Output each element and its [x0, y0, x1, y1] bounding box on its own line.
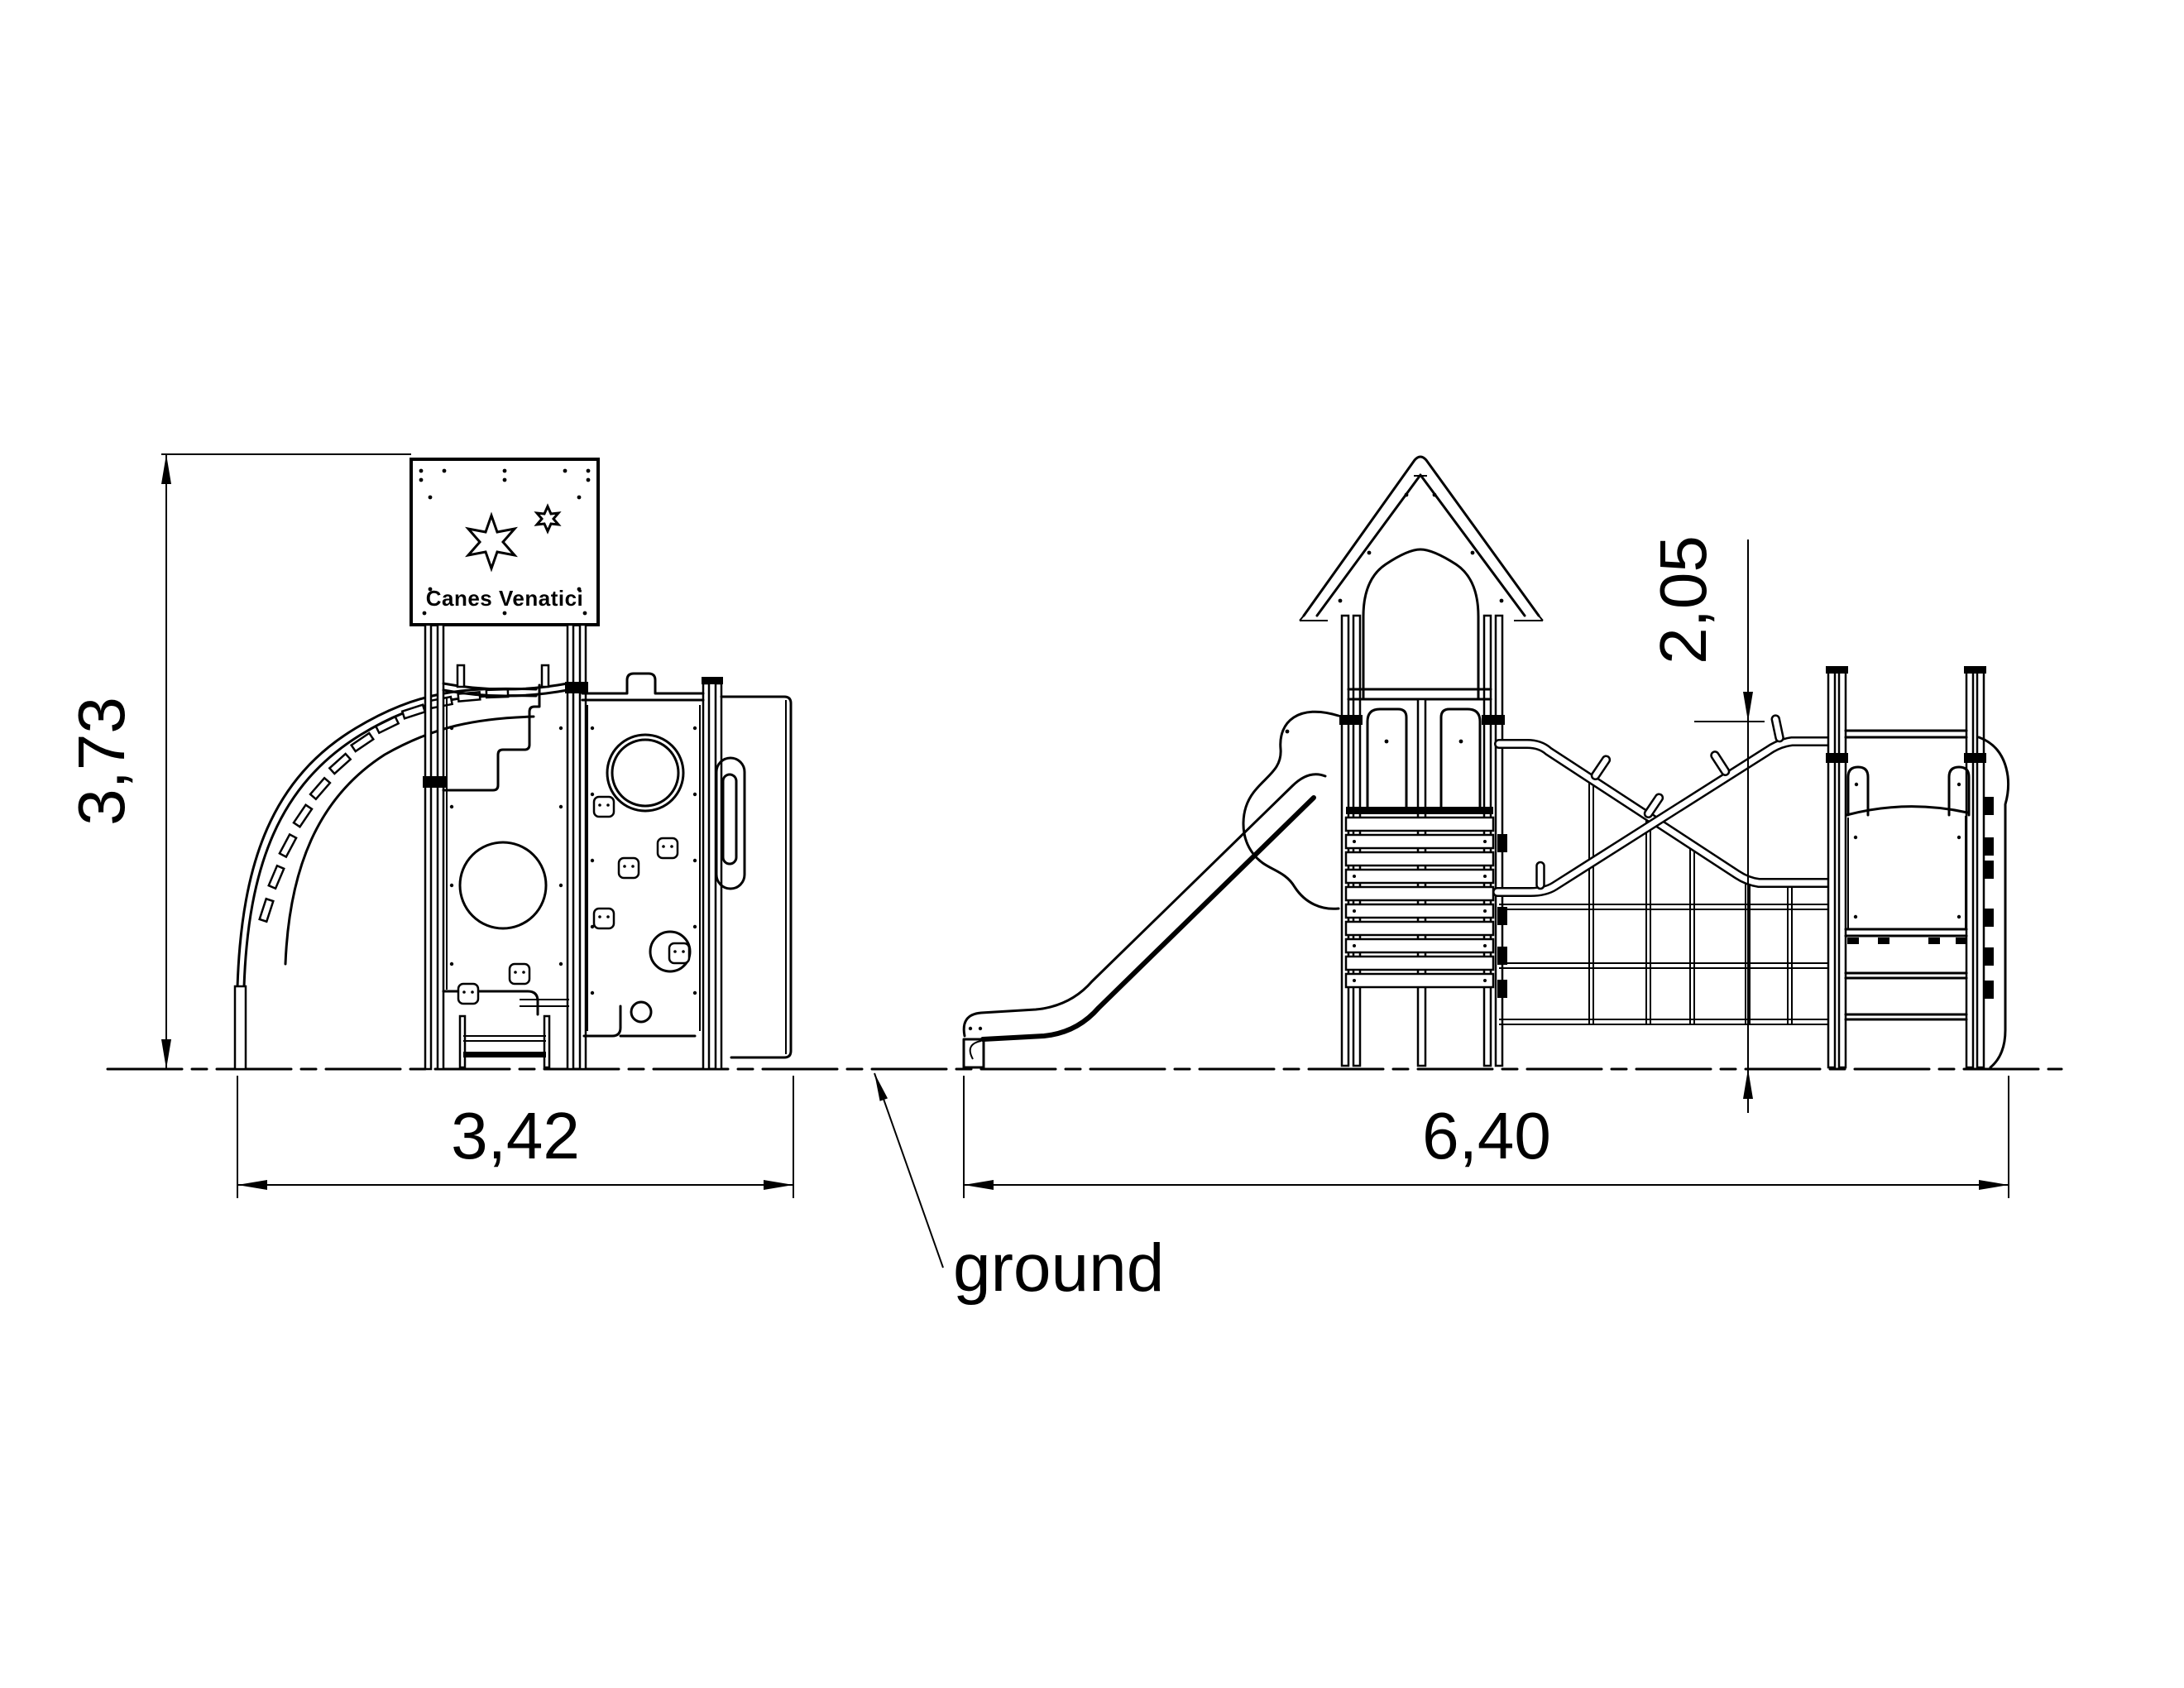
end-unit-posts — [1826, 666, 1986, 1067]
climbing-hold-icon — [594, 797, 614, 817]
rail-clamp — [1497, 947, 1507, 965]
ramp-support-post — [235, 986, 246, 1069]
ground-label: ground — [953, 1230, 1164, 1306]
front-elevation-view: Canes Venatici — [235, 459, 791, 1069]
end-unit-rails — [1846, 929, 1967, 1019]
playground-elevation-drawing: Canes Venatici — [0, 0, 2184, 1688]
crawl-hole — [460, 842, 546, 928]
tower-roof — [1300, 457, 1543, 621]
dimension-label-climb-height: 2,05 — [1646, 535, 1720, 664]
step-tread — [463, 1052, 546, 1057]
handle-stub — [542, 665, 548, 687]
sign-board: Canes Venatici — [411, 459, 598, 625]
climbing-net-section — [1497, 715, 1830, 1024]
curved-climbing-ramp — [235, 688, 536, 1069]
dimension-side-length: 6,40 — [964, 1076, 2009, 1198]
end-climbing-unit — [1826, 666, 2009, 1067]
rail-clamp — [1497, 834, 1507, 852]
end-unit-panel — [1846, 807, 1967, 929]
rail-clamp — [1497, 980, 1507, 998]
tower — [1300, 457, 1543, 1066]
dimension-label-front-width: 3,42 — [451, 1099, 580, 1172]
tube-rungs — [1537, 715, 1784, 889]
climbing-tube-ascending — [1497, 741, 1830, 892]
sign-text: Canes Venatici — [426, 586, 584, 611]
ground-callout: ground — [874, 1073, 1164, 1306]
climbing-hold-icon — [510, 964, 529, 984]
handle-slot — [723, 774, 736, 864]
access-steps — [460, 1000, 569, 1067]
handle-stub — [457, 665, 464, 687]
climbing-hold-icon — [619, 858, 639, 878]
dimension-label-side-length: 6,40 — [1422, 1099, 1551, 1172]
dimension-front-width: 3,42 — [237, 1076, 793, 1198]
side-elevation-view — [964, 457, 2009, 1067]
climbing-hold-icon — [658, 838, 678, 858]
climbing-hold-icon — [458, 984, 478, 1004]
tower-arch-opening — [1363, 549, 1478, 699]
dimension-label-front-height: 3,73 — [65, 697, 138, 826]
porthole — [607, 735, 683, 811]
slide-edge-panel — [721, 697, 791, 1057]
side-hold-tabs — [1984, 797, 1994, 999]
tiny-hole — [631, 1002, 651, 1022]
post-cap — [702, 677, 723, 684]
ramp-cleats — [260, 689, 508, 922]
climbing-hold-icon — [669, 943, 689, 963]
climbing-hold-icon — [594, 909, 614, 928]
slide — [964, 712, 1339, 1067]
panel-screws — [450, 727, 563, 966]
slide-entry-guard — [1243, 712, 1339, 909]
balustrade-panel — [1848, 767, 1868, 815]
technical-drawing-page: Canes Venatici — [0, 0, 2184, 1688]
post-clamp — [423, 776, 446, 788]
climbing-wall-panel — [582, 674, 703, 1036]
